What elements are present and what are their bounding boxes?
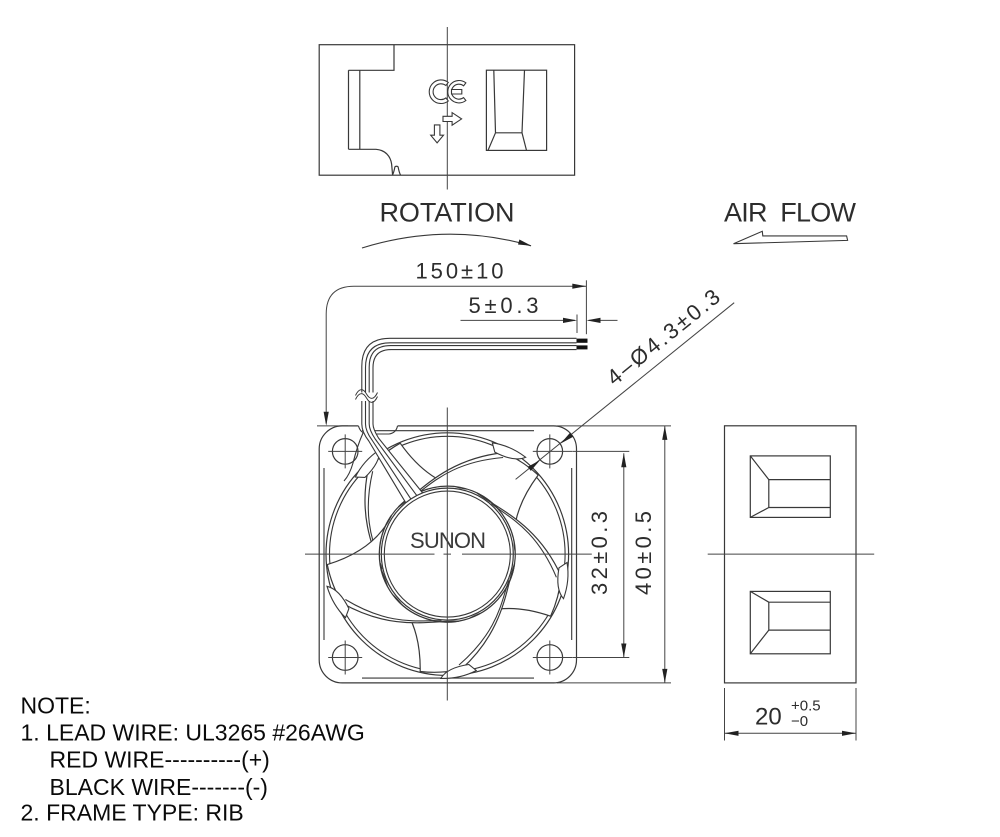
svg-text:20: 20	[755, 704, 782, 731]
svg-text:2. FRAME TYPE: RIB: 2. FRAME TYPE: RIB	[21, 800, 244, 826]
svg-text:−0: −0	[791, 713, 808, 730]
svg-text:ROTATION: ROTATION	[380, 198, 517, 228]
svg-text:+0.5: +0.5	[791, 698, 821, 715]
svg-text:NOTE:: NOTE:	[21, 692, 91, 718]
svg-text:RED WIRE----------(+): RED WIRE----------(+)	[50, 747, 270, 773]
svg-text:1. LEAD WIRE: UL3265 #26AWG: 1. LEAD WIRE: UL3265 #26AWG	[21, 720, 365, 746]
svg-text:5±0.3: 5±0.3	[469, 293, 539, 318]
svg-text:BLACK WIRE-------(-): BLACK WIRE-------(-)	[50, 774, 268, 800]
svg-text:SUNON: SUNON	[410, 528, 487, 553]
svg-text:AIR FLOW: AIR FLOW	[724, 198, 858, 228]
